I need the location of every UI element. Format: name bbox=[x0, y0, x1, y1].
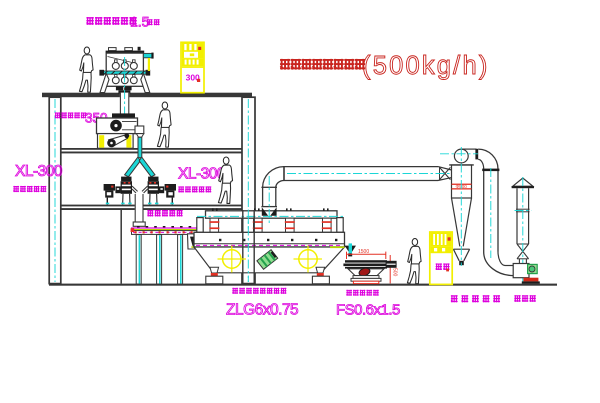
svg-text:(500kg/h): (500kg/h) bbox=[362, 52, 490, 80]
svg-text:XL-300: XL-300 bbox=[15, 163, 63, 180]
svg-text:1500: 1500 bbox=[358, 249, 369, 255]
svg-text:1.5: 1.5 bbox=[130, 14, 150, 30]
svg-text:ZLG6x0.75: ZLG6x0.75 bbox=[226, 302, 298, 319]
svg-text:500: 500 bbox=[392, 268, 398, 277]
svg-text:FS0.6x1.5: FS0.6x1.5 bbox=[336, 302, 400, 319]
